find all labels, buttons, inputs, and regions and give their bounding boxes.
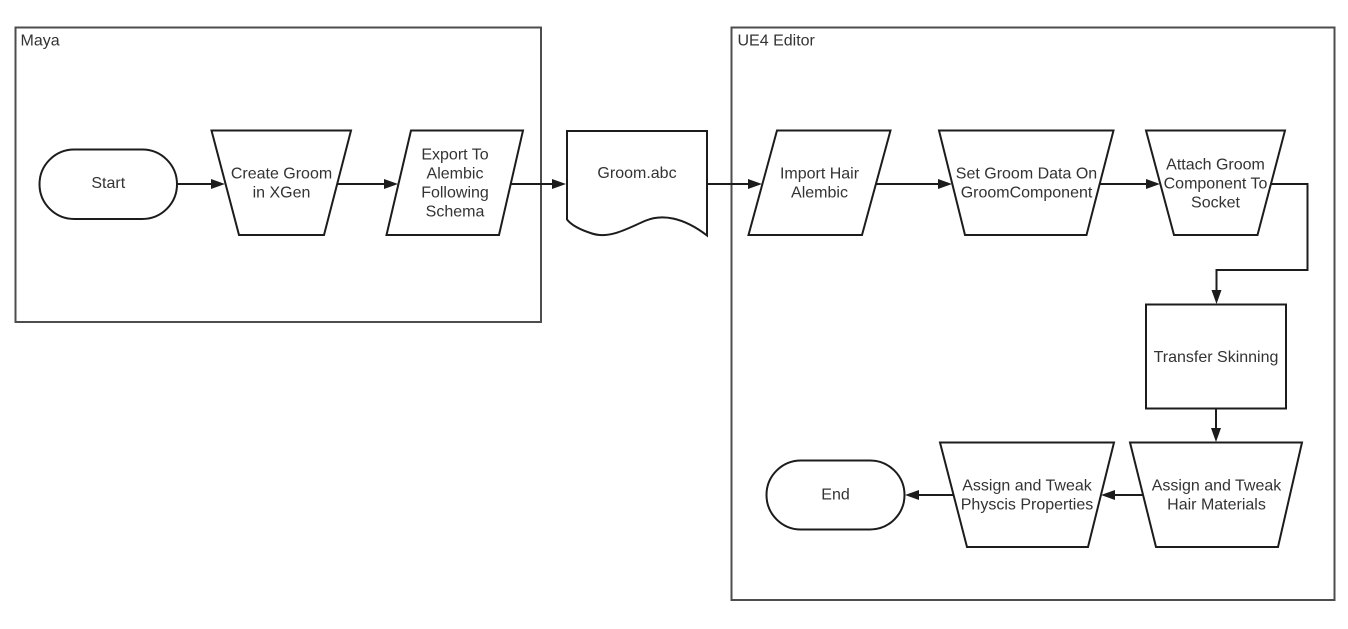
svg-text:UE4 Editor: UE4 Editor — [738, 33, 816, 50]
svg-text:Maya: Maya — [21, 33, 60, 50]
svg-text:Following: Following — [421, 185, 489, 202]
svg-text:Component To: Component To — [1164, 176, 1268, 193]
svg-text:Alembic: Alembic — [427, 166, 484, 183]
svg-text:Set Groom Data On: Set Groom Data On — [956, 166, 1097, 183]
svg-text:Socket: Socket — [1191, 195, 1240, 212]
svg-text:End: End — [821, 487, 849, 504]
svg-text:in XGen: in XGen — [253, 185, 311, 202]
svg-text:Attach Groom: Attach Groom — [1166, 157, 1265, 174]
svg-text:Assign and Tweak: Assign and Tweak — [1152, 478, 1283, 495]
svg-text:Create Groom: Create Groom — [231, 166, 332, 183]
svg-text:Assign and Tweak: Assign and Tweak — [962, 478, 1093, 495]
svg-text:Physcis Properties: Physcis Properties — [961, 497, 1094, 514]
svg-text:Transfer Skinning: Transfer Skinning — [1154, 349, 1279, 366]
svg-text:Alembic: Alembic — [791, 185, 848, 202]
svg-text:Import Hair: Import Hair — [780, 166, 860, 183]
svg-text:Export To: Export To — [421, 147, 488, 164]
svg-text:Hair Materials: Hair Materials — [1167, 497, 1266, 514]
svg-text:Schema: Schema — [426, 204, 485, 221]
svg-text:GroomComponent: GroomComponent — [961, 185, 1093, 202]
svg-text:Start: Start — [91, 175, 125, 192]
svg-text:Groom.abc: Groom.abc — [597, 165, 676, 182]
